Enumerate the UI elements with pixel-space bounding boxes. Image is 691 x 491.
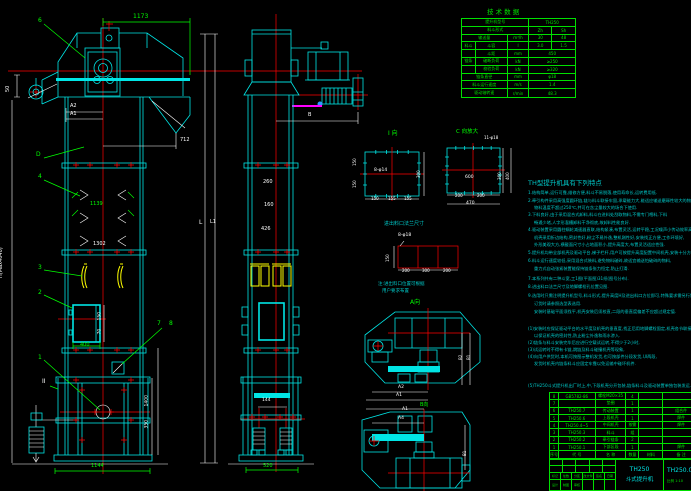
table-cell [663, 400, 691, 406]
table-cell: 1 [626, 408, 639, 414]
feature-note-line: 4.驱动装置采用圆柱蜗轮减速器直联,结构紧凑,布置灵活,运转平稳,工况噪声小传动… [528, 228, 691, 232]
tick-mark [445, 146, 502, 195]
title-block-cell [563, 459, 576, 465]
cad-canvas: 提升机型号TH250料斗形式ZhSh输送量m³/h3048料斗斗容l3.01.5… [0, 0, 691, 491]
table-cell: 输送量 [462, 35, 508, 42]
view-b-dim: A4 [398, 417, 404, 422]
dim-400: 400 [80, 343, 90, 348]
table-cell [639, 415, 663, 421]
dim-a2: A2 [70, 104, 77, 109]
dim-160: 160 [264, 203, 274, 208]
feature-note-line: (1)安装时应保证驱动平台的水平度及机壳的垂直度,找正后用地脚螺栓固定,机壳各节… [528, 327, 691, 331]
table-cell: TH250.2 [559, 437, 596, 443]
table-cell: 焊件 [663, 415, 691, 421]
inlet-note: 注:进出料口位置可根据 [378, 283, 425, 288]
table-cell: 1 [626, 444, 639, 450]
flange-caption: 进出料口法兰尺寸 [384, 222, 424, 227]
view-b-dim: A1 [402, 408, 408, 413]
dim-712: 712 [180, 138, 190, 143]
table-cell: TH250.1 [559, 444, 596, 450]
tech-table-title: 技 术 数 据 [487, 9, 519, 16]
table-cell: l [508, 42, 530, 49]
title-area: TH250 斗式提升机 [616, 459, 664, 490]
item-6: 6 [38, 18, 42, 24]
feature-note-line: 重力式自动张紧装置能保持链条张力恒定,防止打滑. [534, 267, 629, 271]
flange-i-dim: 150 [353, 180, 357, 188]
table-cell: TH250.6 [559, 415, 596, 421]
dim-1400: 1400 [146, 395, 151, 406]
dim-l: L [199, 220, 202, 226]
title-block-label: 签名 [594, 473, 605, 479]
dim-b: B [308, 113, 311, 118]
table-cell: φ18 [529, 74, 575, 81]
feature-note-line: 5.提升机均带全部机壳及驱动平台,梯子栏杆,用户可按提升高度配置中间机壳,安装十… [528, 251, 691, 255]
dim-1173: 1173 [133, 14, 148, 20]
table-cell: 5 [550, 415, 559, 421]
title-block-label: 审核 [572, 480, 583, 490]
table-cell: 斗容 [476, 42, 508, 49]
flange-c-dim: 400 [506, 172, 510, 180]
feature-note-line: (4)向用户供货时,本机可按图示整机发货,也可按部件分段发货,Ⅰ,Ⅱ两段, [528, 355, 657, 359]
technical-data-table: 提升机型号TH250料斗形式ZhSh输送量m³/h3048料斗斗容l3.01.5… [461, 18, 576, 98]
dim-350: 350 [146, 419, 151, 428]
flange-c-dim: 600 [465, 176, 474, 181]
table-cell: 4 [626, 393, 639, 399]
dim-1144: 1144 [91, 464, 104, 469]
item-7: 7 [157, 321, 161, 327]
table-cell: 2 [550, 437, 559, 443]
title-block-cell [583, 480, 594, 490]
view-b-drawing [362, 409, 470, 491]
table-cell: 1.5 [552, 42, 575, 49]
table-cell: 48.3 [529, 89, 575, 97]
title-block-cell [576, 466, 589, 472]
flange-c-dim: 200 [477, 194, 485, 198]
table-cell: ≥320 [529, 66, 575, 73]
feature-note-line: 畅通少堵,人字形溜槽卸料干净彻底,故卸料性能良好. [534, 221, 630, 225]
table-cell: TH250 [529, 19, 575, 26]
table-cell [639, 444, 663, 450]
view-a-dim: A2 [398, 386, 404, 391]
title-block-cell [590, 466, 603, 472]
table-cell [639, 408, 663, 414]
feature-note-line: 2.牵引构件采用高强度圆环链,链与料斗联接牢固,承载能力大,能适应输送磨琢性较大… [528, 199, 691, 203]
inlet-dim: 200 [443, 269, 451, 273]
drawing-model: TH250 [630, 466, 650, 473]
table-cell [462, 50, 476, 57]
table-cell: ≥250 [529, 58, 575, 65]
table-cell [639, 393, 663, 399]
table-cell: Zh [529, 27, 552, 34]
view-label-b: B向 [420, 403, 428, 408]
table-cell [639, 437, 663, 443]
table-cell: 组 [626, 429, 639, 435]
table-cell: 1 [626, 400, 639, 406]
inlet-dim: 150 [386, 254, 390, 262]
table-cell: 焊件 [663, 422, 691, 428]
drawing-number-area: TH250.0 比例 1:10 [664, 459, 691, 490]
table-cell: 料斗运行速度 [462, 81, 508, 88]
feature-note-line: 订货时请参照选型表选用. [534, 302, 581, 306]
title-block-label: 处数 [561, 473, 572, 479]
tick-marks [73, 146, 502, 443]
table-cell: kN [508, 66, 530, 73]
dim-150-door: 150 [99, 311, 104, 320]
table-cell: 2 [626, 437, 639, 443]
table-cell: 螺栓M20×35 [596, 393, 627, 399]
view-label-a: A向 [410, 300, 420, 306]
flange-i-dim: 150 [371, 197, 379, 201]
feature-note-line: 9.选用时只需注明提升机型号,料斗形式,提升高度H及进出料口方位即可,特殊要求需… [528, 294, 691, 298]
item-8: 8 [169, 321, 173, 327]
view-b-dim: B1 [463, 451, 467, 456]
side-view-drawing [228, 14, 368, 473]
drawing-number: TH250.0 [667, 467, 691, 474]
table-cell: 48 [552, 35, 575, 42]
dim-426: 426 [261, 227, 271, 232]
table-cell [663, 429, 691, 435]
table-cell: 下部区段 [596, 444, 627, 450]
feature-note-line: 以保证机壳的密封性,防止粉尘外逸和雨水渗入. [534, 334, 620, 338]
table-cell: 提升机型号 [462, 19, 529, 26]
feature-note-line: 1.结构简单,运行可靠,维修方便,料斗不易脱落,使用寿命长,运转费用低. [528, 191, 657, 195]
drawing-title: 斗式提升机 [626, 475, 654, 483]
section-ii: II [42, 379, 46, 385]
flange-c-dim: 360 [498, 172, 502, 180]
item-1: 1 [38, 355, 42, 361]
feature-note-line: 8.进出料口法兰尺寸及地脚螺栓孔位置见图. [528, 285, 609, 289]
table-cell: m³/h [508, 35, 530, 42]
title-block-label: 分区 [572, 473, 583, 479]
table-cell [462, 66, 476, 73]
table-cell [663, 437, 691, 443]
feature-note-line: 外形美观大方,横截面尺寸小占地面积小,提升高度大,布置灵活适应性强. [534, 243, 665, 247]
table-cell: 8 [550, 393, 559, 399]
inlet-note: 用户要求布置 [382, 290, 409, 295]
inlet-flange-detail [394, 241, 458, 270]
view-label-i: I 向 [388, 131, 398, 137]
flange-c-dim: 200 [455, 194, 463, 198]
table-cell: m/s [508, 81, 530, 88]
dim-70-door: 70 [99, 328, 104, 334]
table-cell: 料斗 [596, 429, 627, 435]
drawing-scale: 比例 1:10 [667, 479, 683, 484]
title-block-label: 日期 [605, 473, 615, 479]
table-cell: 牵引链条 [596, 437, 627, 443]
features-heading: TH型提升机具有下列特点 [528, 180, 602, 187]
title-block-cell [576, 459, 589, 465]
table-cell [639, 400, 663, 406]
table-cell: 3.0 [529, 42, 552, 49]
table-cell [559, 400, 596, 406]
flange-i-dim: 150 [353, 158, 357, 166]
table-cell: 料斗 [462, 42, 476, 49]
table-cell: 组合件 [663, 408, 691, 414]
feature-note-line: (2)链条与料斗安装完毕后应进行空载试运转,不得少于2小时, [528, 341, 640, 345]
title-block-label: 设计 [550, 480, 561, 490]
item-3: 3 [38, 265, 42, 271]
table-cell: mm [508, 50, 530, 57]
feature-note-line: 发货时机壳内链条料斗应固定牢靠以免运输中碰坏机件. [534, 362, 636, 366]
dim-50: 50 [6, 86, 11, 92]
flange-i-holes: 8-φ14 [374, 169, 387, 174]
dim-1139: 1139 [90, 202, 103, 207]
label-d: D [36, 152, 41, 158]
dim-l1: L1 [210, 220, 216, 225]
title-block-label: 更改文件号 [583, 473, 594, 479]
title-block-cell [603, 459, 615, 465]
table-cell: 1 [550, 444, 559, 450]
view-a-dim: B2 [459, 355, 463, 360]
title-block-label: 制图 [561, 480, 572, 490]
flange-c-dim: 470 [466, 202, 475, 207]
table-cell: 上段机壳 [596, 415, 627, 421]
table-cell: 驱动轴转速 [462, 89, 508, 97]
title-block-cell [605, 480, 615, 490]
title-block-label: 标记 [550, 473, 561, 479]
view-a-dim: A1 [396, 394, 402, 399]
inlet-dim: 200 [402, 269, 410, 273]
table-cell: 1.4 [529, 81, 575, 88]
dim-520: 520 [263, 464, 273, 469]
view-label-c: C 向放大 [456, 130, 478, 136]
feature-note-line: 机壳采用折边结构,密封性好,粉尘不易外逸,整机刚性好,安装找正方便,工作环境好, [534, 236, 684, 240]
title-block-cell [563, 466, 576, 472]
table-cell: 6 [550, 408, 559, 414]
feature-note-line: 3.下料良好,由于采用混合式卸料,料斗在进料处刮取物料,不需专门喂料,下料 [528, 213, 667, 217]
signature-area: 标记处数分区更改文件号签名日期设计制图审核 [550, 459, 616, 490]
item-2: 2 [38, 290, 42, 296]
dim-144: 144 [262, 399, 271, 404]
table-cell: 校验负荷 [476, 66, 508, 73]
parts-list-table: 8GB5782-86螺栓M20×3547垫圈16TH250.7传动装置1组合件5… [549, 392, 691, 460]
feature-note-line: (3)试运转时不得有卡链,跳链及料斗碰撞机壳等现象, [528, 348, 625, 352]
table-cell: 料斗形式 [462, 27, 529, 34]
table-cell: 3 [550, 429, 559, 435]
feature-note-line: 7.本系列共有二种斗宽,工1图(平面图)31纸(图号分布). [528, 277, 629, 281]
table-cell: 1 [626, 415, 639, 421]
table-cell: 7 [550, 400, 559, 406]
table-cell: 中间机壳 [596, 422, 627, 428]
table-cell: 破断负荷 [476, 58, 508, 65]
item-4: 4 [38, 174, 42, 180]
title-block-cell [594, 480, 605, 490]
title-block-cell [550, 459, 563, 465]
title-block: 标记处数分区更改文件号签名日期设计制图审核 TH250 斗式提升机 TH250.… [549, 458, 691, 491]
flange-i-dim: 155 [388, 197, 396, 201]
table-cell [639, 422, 663, 428]
title-block-cell [590, 459, 603, 465]
table-cell: kN [508, 58, 530, 65]
table-cell [639, 429, 663, 435]
flange-i-dim: 300 [417, 170, 421, 178]
table-cell: mm [508, 74, 530, 81]
table-cell: 按需 [626, 422, 639, 428]
title-block-cell [550, 466, 563, 472]
title-block-cell [603, 466, 615, 472]
feature-note-line: 安装时基础平面须找平,机壳安装后须校直,二段的垂直度偏差不应超过规定值. [534, 310, 676, 314]
table-cell: r/min [508, 89, 530, 97]
table-cell: 焊件 [663, 444, 691, 450]
dim-h-max: H(Max4040) [0, 247, 4, 278]
table-cell: 30 [529, 35, 552, 42]
table-cell: Sh [552, 27, 575, 34]
table-cell: 450 [529, 50, 575, 57]
inlet-holes: 8-φ18 [398, 234, 411, 239]
table-cell: 4 [550, 422, 559, 428]
table-cell: TH250.3 [559, 429, 596, 435]
table-cell: 链条直径 [462, 74, 508, 81]
table-cell [663, 393, 691, 399]
feature-note-line: 物料温度不超过250℃,并可在含尘量较大的场合下使用. [534, 206, 637, 210]
flange-i-dim: 155 [404, 197, 412, 201]
table-cell: 垫圈 [596, 400, 627, 406]
dim-260: 260 [263, 180, 273, 185]
table-cell: TH250.4~5 [559, 422, 596, 428]
front-view-drawing [8, 18, 362, 474]
table-cell: 斗距 [476, 50, 508, 57]
dim-1302: 1302 [93, 242, 106, 247]
inlet-dim: 300 [422, 269, 430, 273]
table-cell: 传动装置 [596, 408, 627, 414]
table-cell: GB5782-86 [559, 393, 596, 399]
flange-c-holes: 11-φ18 [484, 136, 498, 140]
feature-note-line: (5)TH250斗式提升机出厂时上,中,下段机壳分开包装,链条料斗及驱动装置单独… [528, 384, 691, 388]
feature-note-line: 6.料斗运行速度较低,采用混合式装料,避免物料破碎,故适宜输送怕破碎的物料, [528, 259, 671, 263]
flange-i-view [360, 147, 424, 201]
table-cell: TH250.7 [559, 408, 596, 414]
view-a-dim: B1 [467, 355, 471, 360]
table-cell: 链条 [462, 58, 476, 65]
dim-a1: A1 [70, 112, 77, 117]
